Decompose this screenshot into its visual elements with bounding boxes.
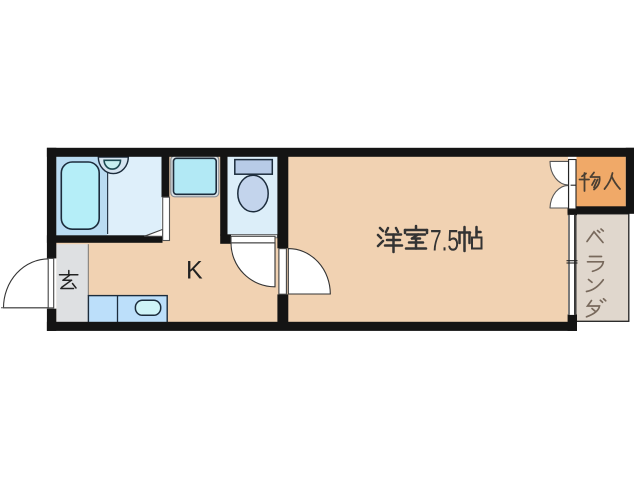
svg-text:K: K (186, 256, 203, 284)
svg-text:7.5: 7.5 (430, 225, 459, 258)
